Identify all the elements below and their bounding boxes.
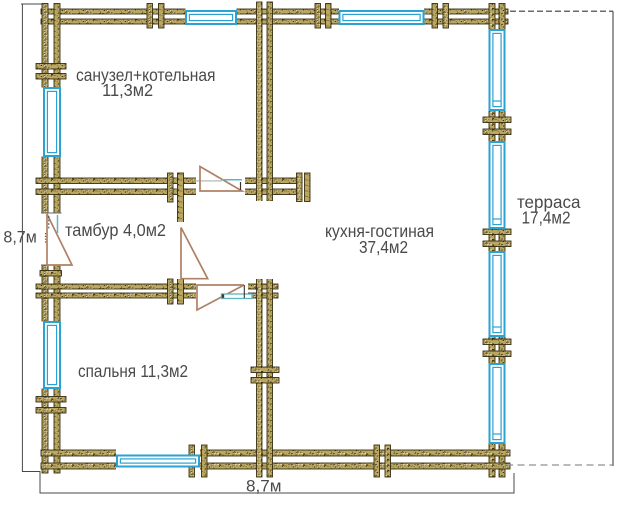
svg-text:37,4м2: 37,4м2 [359, 237, 408, 257]
svg-text:17,4м2: 17,4м2 [522, 208, 571, 228]
svg-text:тамбур 4,0м2: тамбур 4,0м2 [65, 220, 166, 240]
svg-text:спальня 11,3м2: спальня 11,3м2 [78, 361, 188, 381]
svg-text:8,7м: 8,7м [246, 478, 282, 496]
svg-text:8,7м: 8,7м [3, 229, 36, 247]
svg-text:11,3м2: 11,3м2 [102, 80, 153, 100]
